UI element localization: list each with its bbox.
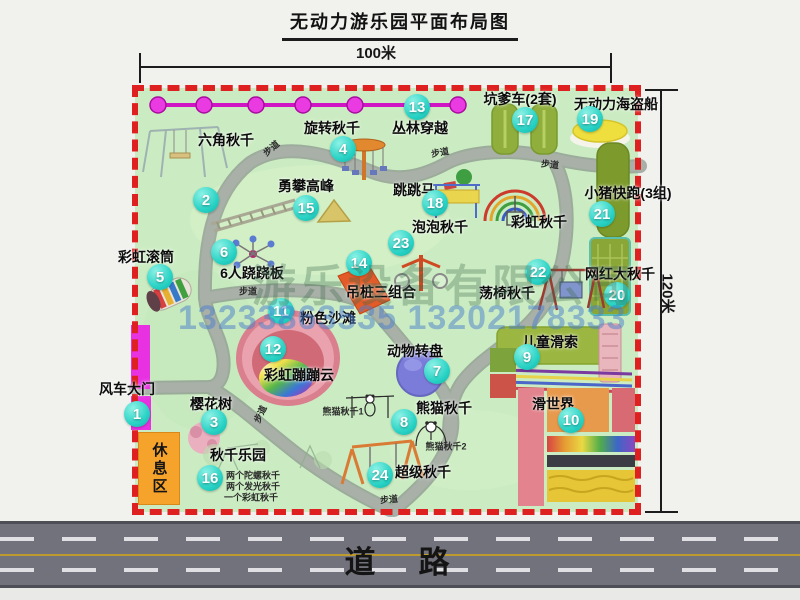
height-dimension-label: 120米: [658, 273, 679, 313]
park-map-area: [135, 88, 638, 512]
road: 道 路: [0, 521, 800, 588]
below-road-strip: [0, 588, 800, 600]
rest-area-label: 休息区: [149, 442, 170, 496]
page-header: 无动力游乐园平面布局图: [0, 8, 800, 41]
width-dimension-label: 100米: [0, 42, 752, 63]
road-label: 道 路: [0, 537, 800, 582]
rest-area: 休息区: [138, 432, 180, 505]
page-title: 无动力游乐园平面布局图: [282, 8, 518, 41]
